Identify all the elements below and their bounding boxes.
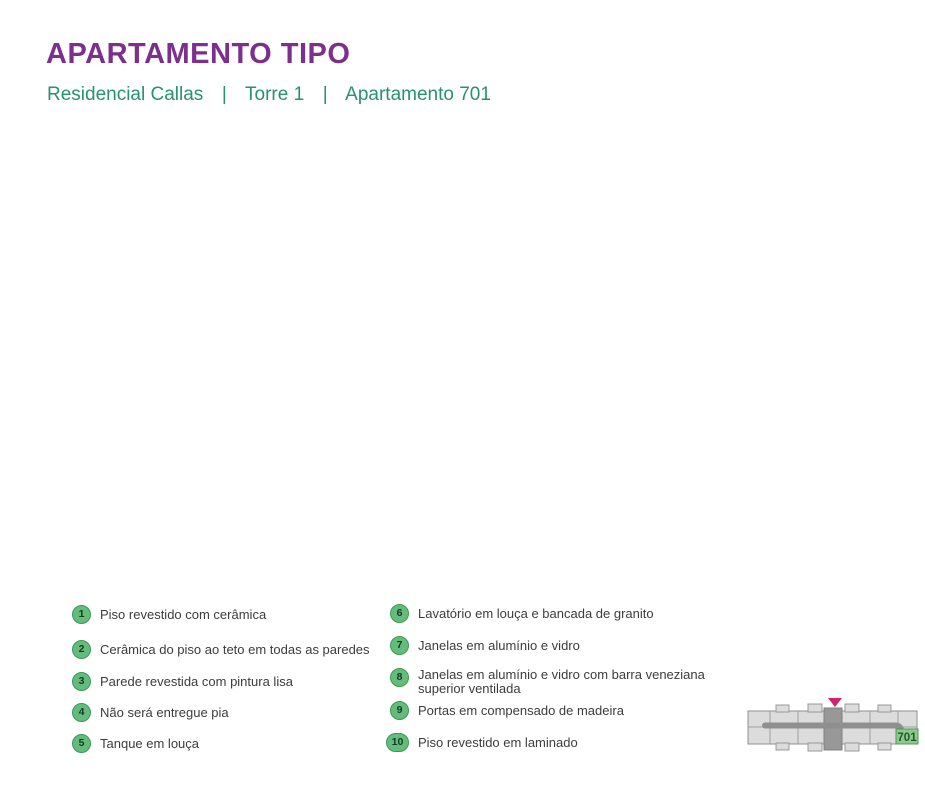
svg-text:701: 701 <box>897 732 917 744</box>
